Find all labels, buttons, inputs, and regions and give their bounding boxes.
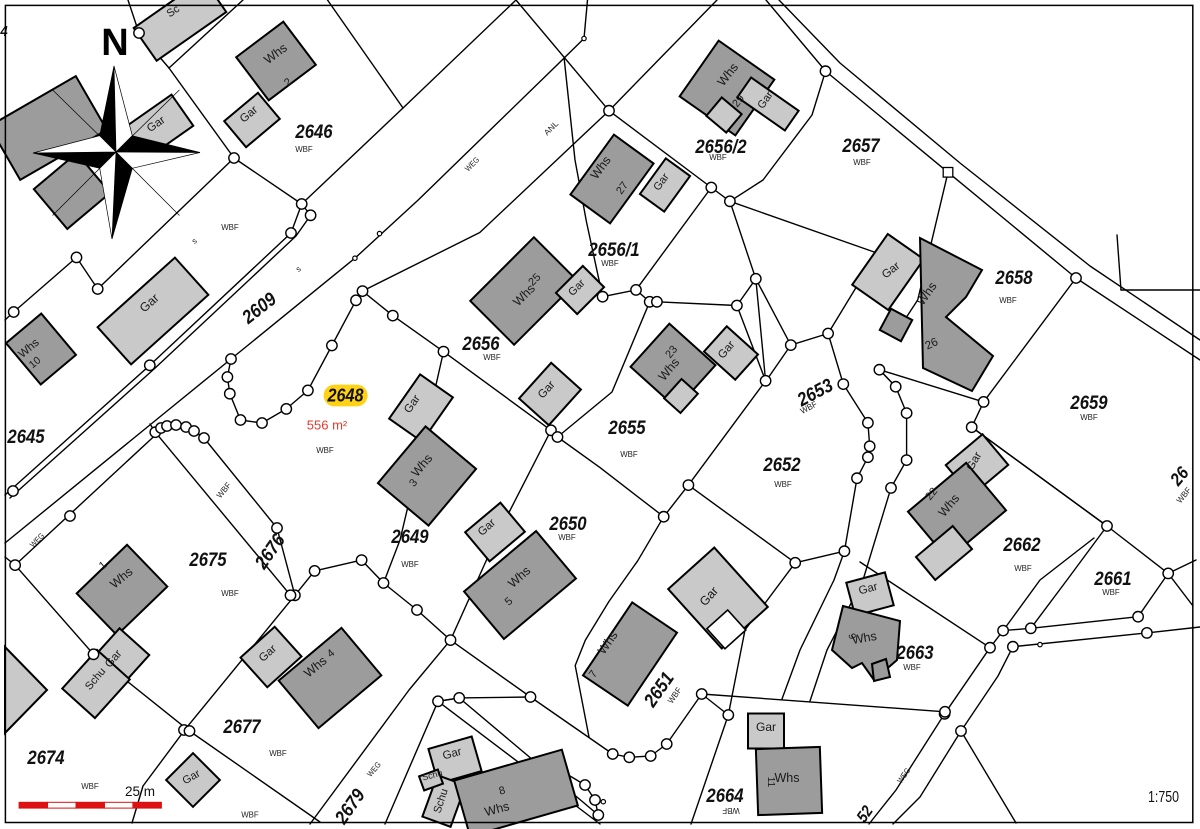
svg-text:2648: 2648 bbox=[327, 386, 364, 406]
svg-text:2645: 2645 bbox=[7, 427, 45, 448]
svg-text:2655: 2655 bbox=[608, 418, 646, 439]
svg-text:WBF: WBF bbox=[269, 748, 287, 758]
svg-text:WBF: WBF bbox=[999, 295, 1017, 305]
svg-text:WBF: WBF bbox=[401, 559, 419, 569]
svg-text:WBF: WBF bbox=[241, 810, 259, 820]
svg-text:N: N bbox=[101, 22, 128, 64]
svg-text:2649: 2649 bbox=[391, 527, 429, 548]
svg-text:WBF: WBF bbox=[722, 806, 740, 816]
svg-text:WBF: WBF bbox=[709, 152, 727, 162]
svg-text:WBF: WBF bbox=[774, 479, 792, 489]
svg-text:WBF: WBF bbox=[1014, 563, 1032, 573]
svg-text:11: 11 bbox=[765, 777, 776, 788]
svg-text:4: 4 bbox=[0, 23, 8, 40]
svg-text:556 m²: 556 m² bbox=[307, 418, 348, 433]
svg-text:Gar: Gar bbox=[756, 720, 776, 734]
svg-text:2664: 2664 bbox=[706, 786, 744, 807]
svg-text:2652: 2652 bbox=[763, 455, 801, 476]
svg-text:1:750: 1:750 bbox=[1148, 789, 1179, 806]
svg-text:WBF: WBF bbox=[620, 449, 638, 459]
svg-text:WBF: WBF bbox=[903, 662, 921, 672]
svg-text:2662: 2662 bbox=[1003, 535, 1041, 556]
svg-text:2659: 2659 bbox=[1070, 393, 1108, 414]
svg-text:2657: 2657 bbox=[842, 136, 881, 157]
svg-text:2677: 2677 bbox=[223, 717, 262, 738]
svg-text:2675: 2675 bbox=[189, 550, 227, 571]
svg-text:2646: 2646 bbox=[295, 122, 333, 143]
svg-text:WBF: WBF bbox=[1080, 412, 1098, 422]
svg-text:WBF: WBF bbox=[295, 144, 313, 154]
svg-text:WBF: WBF bbox=[1102, 587, 1120, 597]
svg-text:WBF: WBF bbox=[81, 781, 99, 791]
svg-text:WBF: WBF bbox=[483, 352, 501, 362]
svg-text:WBF: WBF bbox=[221, 588, 239, 598]
svg-text:WBF: WBF bbox=[316, 445, 334, 455]
svg-text:2674: 2674 bbox=[27, 748, 65, 769]
svg-text:WBF: WBF bbox=[221, 222, 239, 232]
svg-text:WBF: WBF bbox=[601, 258, 619, 268]
svg-text:25 m: 25 m bbox=[125, 784, 155, 799]
svg-text:Whs: Whs bbox=[775, 771, 800, 785]
svg-text:WBF: WBF bbox=[853, 157, 871, 167]
svg-text:WBF: WBF bbox=[558, 532, 576, 542]
svg-text:2663: 2663 bbox=[896, 643, 934, 664]
svg-text:2658: 2658 bbox=[995, 268, 1033, 289]
